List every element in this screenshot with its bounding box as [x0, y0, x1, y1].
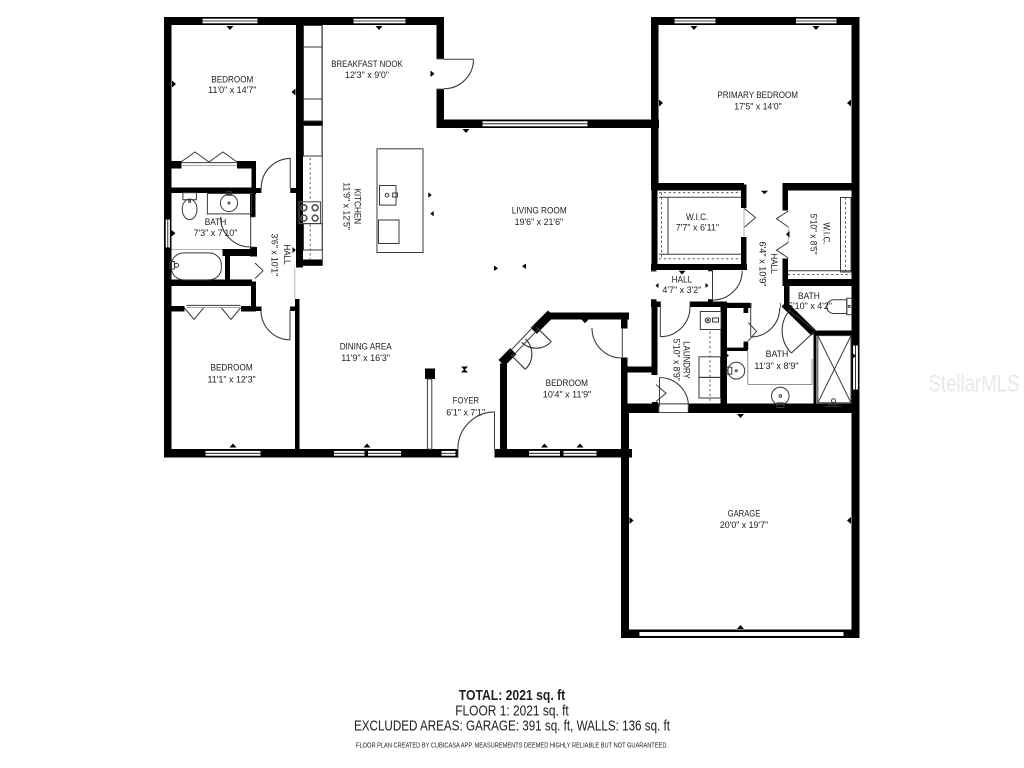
svg-text:10'4" x 11'9": 10'4" x 11'9": [543, 389, 591, 399]
svg-text:4'7" x 3'2": 4'7" x 3'2": [662, 285, 701, 295]
svg-text:FOYER: FOYER: [453, 396, 479, 407]
svg-text:7'7" x 6'11": 7'7" x 6'11": [676, 223, 719, 233]
svg-text:5'10" x 8'9": 5'10" x 8'9": [672, 339, 682, 381]
svg-text:KITCHEN: KITCHEN: [352, 189, 363, 225]
svg-text:TOTAL: 2021 sq. ft: TOTAL: 2021 sq. ft: [459, 688, 566, 704]
svg-text:19'6" x 21'6": 19'6" x 21'6": [515, 217, 564, 227]
svg-text:BREAKFAST NOOK: BREAKFAST NOOK: [331, 59, 403, 70]
svg-text:LIVING ROOM: LIVING ROOM: [512, 206, 567, 217]
svg-text:EXCLUDED AREAS: GARAGE: 391 sq: EXCLUDED AREAS: GARAGE: 391 sq. ft, WALL…: [354, 719, 670, 735]
svg-text:7'3" x 7'10": 7'3" x 7'10": [194, 228, 238, 238]
svg-text:BEDROOM: BEDROOM: [211, 363, 253, 374]
svg-text:BATH: BATH: [766, 349, 789, 360]
svg-text:HALL: HALL: [672, 274, 693, 285]
svg-text:FLOOR 1: 2021 sq. ft: FLOOR 1: 2021 sq. ft: [455, 704, 569, 720]
svg-text:FLOOR PLAN CREATED BY CUBICASA: FLOOR PLAN CREATED BY CUBICASA APP. MEAS…: [356, 741, 668, 750]
svg-text:11'9" x 12'5": 11'9" x 12'5": [342, 182, 352, 230]
svg-text:BEDROOM: BEDROOM: [211, 75, 253, 86]
svg-text:6'4" x 10'9": 6'4" x 10'9": [757, 241, 767, 286]
svg-text:PRIMARY BEDROOM: PRIMARY BEDROOM: [717, 90, 798, 101]
svg-text:W.I.C.: W.I.C.: [686, 212, 708, 223]
svg-text:W.I.C.: W.I.C.: [821, 222, 832, 244]
svg-text:BEDROOM: BEDROOM: [546, 378, 588, 389]
svg-text:5'10" x 4'2": 5'10" x 4'2": [788, 301, 832, 311]
svg-text:HALL: HALL: [768, 253, 779, 273]
svg-text:3'6" x 10'1": 3'6" x 10'1": [269, 233, 279, 276]
svg-text:11'9" x 16'3": 11'9" x 16'3": [341, 353, 390, 363]
svg-text:BATH: BATH: [205, 217, 227, 228]
svg-text:DINING AREA: DINING AREA: [340, 342, 393, 353]
svg-text:6'1" x 7'1": 6'1" x 7'1": [446, 408, 485, 418]
svg-text:HALL: HALL: [281, 244, 292, 264]
svg-text:5'10" x 8'5": 5'10" x 8'5": [809, 214, 819, 255]
svg-text:17'5" x 14'0": 17'5" x 14'0": [734, 101, 782, 111]
svg-text:StellarMLS: StellarMLS: [929, 371, 1020, 398]
svg-text:20'0" x 19'7": 20'0" x 19'7": [720, 520, 768, 530]
svg-text:11'0" x 14'7": 11'0" x 14'7": [208, 85, 256, 95]
svg-text:11'1" x 12'3": 11'1" x 12'3": [207, 374, 255, 384]
svg-text:GARAGE: GARAGE: [728, 509, 761, 520]
svg-text:12'3" x 9'0": 12'3" x 9'0": [345, 70, 389, 80]
svg-text:11'3" x 8'9": 11'3" x 8'9": [754, 361, 798, 371]
